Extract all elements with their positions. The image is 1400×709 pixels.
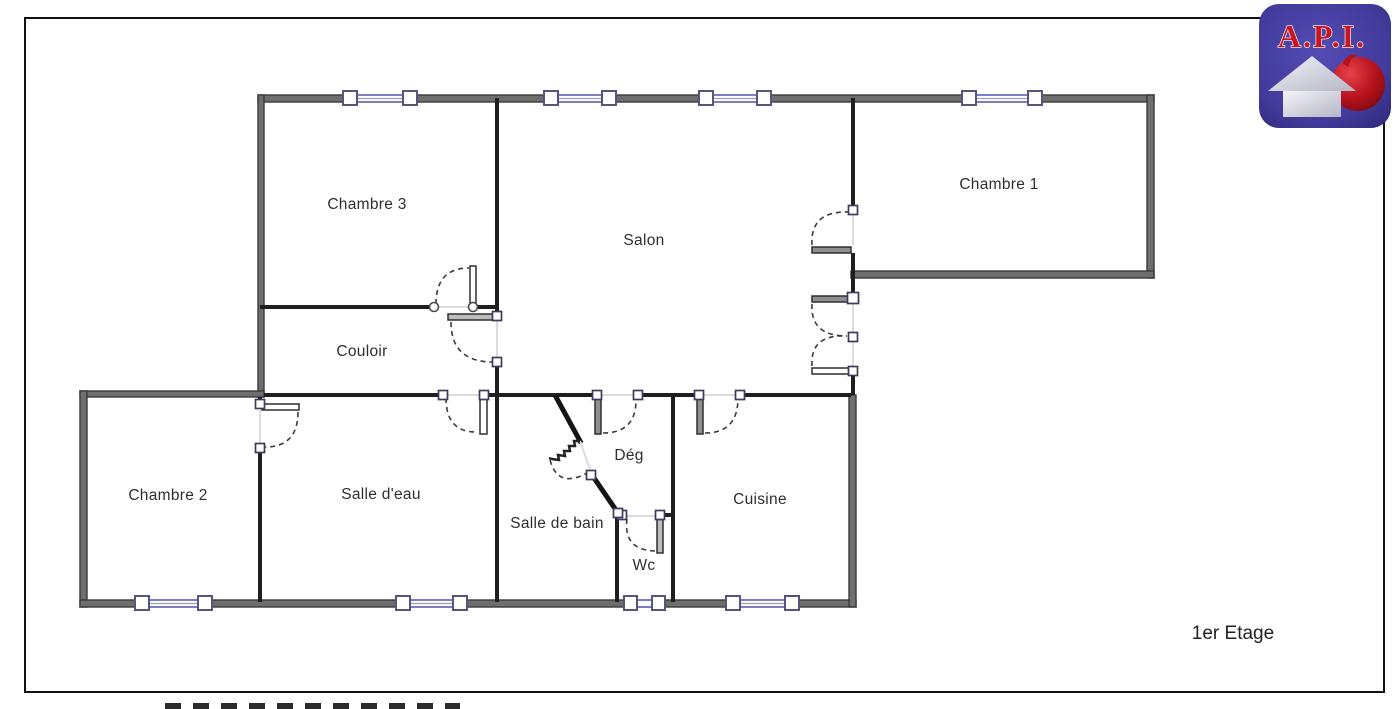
door-hinge (430, 303, 439, 312)
wall-cap (256, 444, 265, 453)
room-label-couloir: Couloir (336, 343, 387, 360)
door-leaf (262, 404, 299, 410)
wall-cap (736, 391, 745, 400)
room-label-chambre-1: Chambre 1 (959, 176, 1038, 193)
wall (495, 364, 499, 602)
floor-label: 1er Etage (1192, 623, 1274, 644)
door-leaf (657, 518, 663, 553)
wall-cap (656, 511, 665, 520)
wall (615, 514, 619, 602)
wall (739, 393, 851, 397)
wall-cap (614, 509, 623, 518)
wall (1147, 95, 1154, 278)
wall-cap (493, 358, 502, 367)
wall (637, 393, 700, 397)
wall (264, 393, 443, 397)
room-label-deg: Dég (614, 447, 643, 464)
wall-cap (593, 391, 602, 400)
room-label-salle-deau: Salle d'eau (341, 486, 421, 503)
room-label-chambre-2: Chambre 2 (128, 487, 207, 504)
room-label-cuisine: Cuisine (733, 491, 787, 508)
door-leaf (812, 296, 851, 302)
wall-cap (480, 391, 489, 400)
wall-cap (849, 206, 858, 215)
door-leaf (812, 368, 851, 374)
wall-cap (256, 400, 265, 409)
wall (80, 391, 87, 607)
wall-cap (849, 367, 858, 376)
wall-cap (848, 293, 859, 304)
door-leaf (480, 397, 487, 434)
door-leaf (595, 397, 601, 434)
wall-cap (695, 391, 704, 400)
wall-cap (439, 391, 448, 400)
room-label-salon: Salon (623, 232, 664, 249)
api-logo: A.P.I. (1259, 4, 1391, 128)
wall (851, 271, 1154, 278)
wall-cap (493, 312, 502, 321)
logo-text: A.P.I. (1278, 18, 1366, 54)
wall (80, 391, 264, 397)
wall (671, 397, 675, 602)
floor-plan-page: Chambre 3 Salon Chambre 1 Couloir Chambr… (0, 0, 1400, 709)
door-leaf (697, 397, 703, 434)
room-label-salle-de-bain: Salle de bain (510, 515, 604, 532)
door-hinge (469, 303, 478, 312)
wall-cap (587, 471, 596, 480)
wall (851, 98, 855, 210)
page-border (25, 18, 1384, 692)
wall (258, 448, 262, 602)
wall-cap (849, 333, 858, 342)
wall (849, 395, 856, 607)
wall (495, 98, 499, 315)
wall (260, 305, 436, 309)
door-leaf (812, 247, 851, 253)
floor-plan-svg: Chambre 3 Salon Chambre 1 Couloir Chambr… (0, 0, 1400, 709)
door-leaf (448, 314, 495, 320)
wall (258, 95, 264, 397)
door-leaf (470, 266, 476, 307)
wall (483, 393, 598, 397)
room-label-wc: Wc (633, 557, 656, 574)
wall (475, 305, 499, 309)
room-label-chambre-3: Chambre 3 (327, 196, 406, 213)
wall-cap (634, 391, 643, 400)
wall (851, 374, 855, 395)
